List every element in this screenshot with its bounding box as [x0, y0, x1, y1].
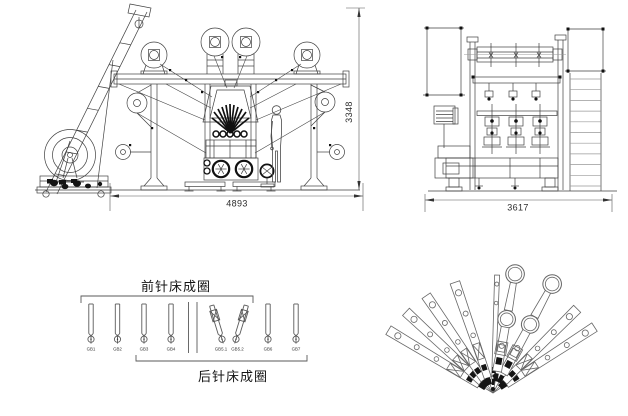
- machine-side-frame: [464, 35, 566, 190]
- guide-bar-lapping-diagram: 前针床成圈 后针床成圈 GB1 GB2 GB3: [81, 279, 307, 384]
- platform-railing: [565, 28, 606, 74]
- access-ladder: [570, 73, 601, 191]
- dimension-3348: 3348: [344, 8, 365, 190]
- guide-bar-fan-front: [212, 104, 249, 133]
- fabric-comb-side: [434, 106, 473, 178]
- gb3-label: GB3: [140, 347, 149, 352]
- gb2-label: GB2: [113, 347, 122, 352]
- gb4-label: GB4: [167, 347, 176, 352]
- guide-bar-GB7: GB7: [292, 304, 301, 352]
- front-width-dimension: 4893: [226, 199, 248, 209]
- gb5-1-label: GB5.1: [215, 347, 228, 352]
- guide-bar-assembly-side: [477, 83, 557, 154]
- operator-figure: [271, 106, 282, 182]
- gb5-2-label: GB5.2: [231, 347, 244, 352]
- left-bracket-frame: [423, 27, 465, 97]
- dimension-4893: 4893: [110, 183, 363, 211]
- machine-base-side: [446, 158, 558, 191]
- guide-bar-GB3: GB3: [140, 304, 149, 352]
- front-bed-bracket: [81, 296, 253, 303]
- rear-bed-label: 后针床成圈: [198, 369, 268, 384]
- side-width-dimension: 3617: [507, 203, 529, 213]
- guide-bar-GB1: GB1: [87, 304, 96, 352]
- front-elevation-view: [35, 4, 360, 197]
- guide-bar-fan-diagram: [386, 263, 597, 397]
- guide-bar-GB2: GB2: [113, 304, 122, 352]
- cad-drawing-sheet: 4893 3348 3617 前针床成圈 后针床成圈 GB1: [0, 0, 628, 416]
- drive-parts: [47, 179, 102, 189]
- guide-bar-GB5-1: GB5.1: [208, 305, 227, 352]
- take-up-rollers: [185, 158, 276, 191]
- front-bed-label: 前针床成圈: [141, 279, 211, 294]
- rear-bed-bracket: [136, 355, 307, 361]
- gb7-label: GB7: [292, 347, 301, 352]
- gb6-label: GB6: [264, 347, 273, 352]
- gb1-label: GB1: [87, 347, 96, 352]
- dimension-3617: 3617: [425, 194, 612, 213]
- side-elevation-view: [423, 27, 617, 192]
- guide-bar-GB6: GB6: [264, 304, 273, 352]
- knitting-head: [203, 80, 258, 158]
- guide-bar-GB4: GB4: [167, 304, 176, 352]
- drawing-svg: 4893 3348 3617 前针床成圈 后针床成圈 GB1: [0, 0, 628, 416]
- guide-bar-GB5-2: GB5.2: [231, 305, 249, 352]
- yarn-beams: [141, 28, 320, 74]
- front-height-dimension: 3348: [344, 101, 354, 123]
